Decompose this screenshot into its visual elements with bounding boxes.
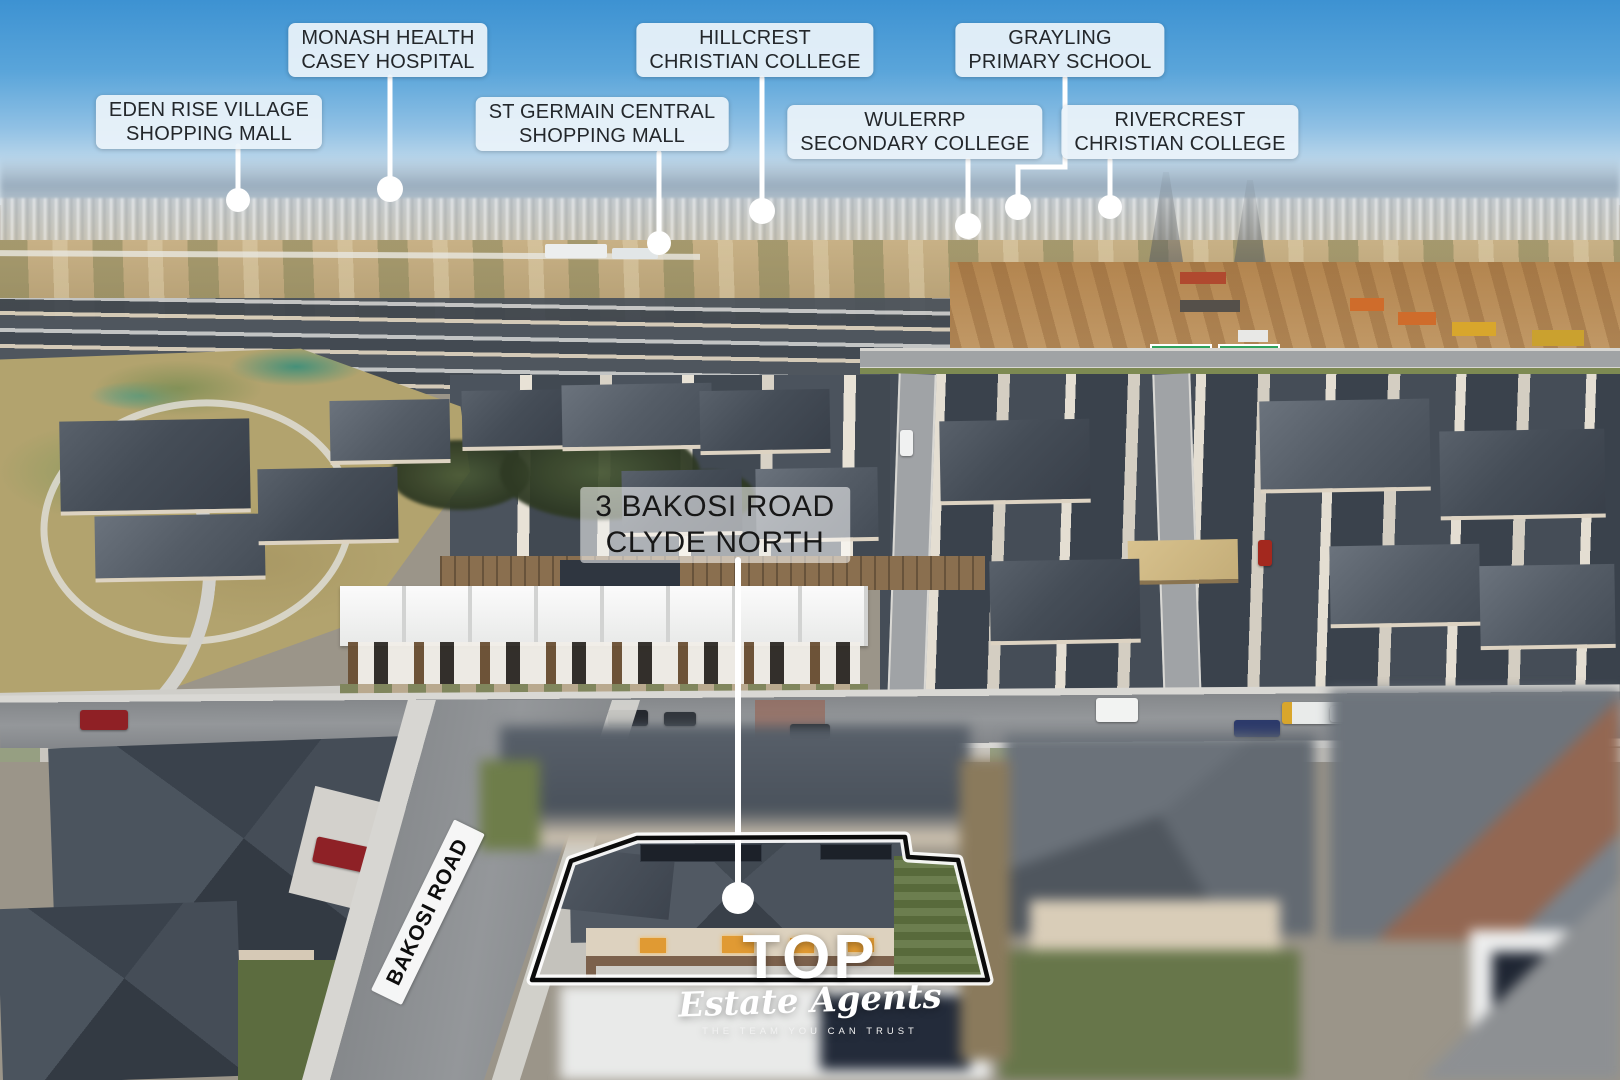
callout-line: CHRISTIAN COLLEGE — [1074, 132, 1285, 156]
location-dot — [647, 231, 671, 255]
property-address-line: 3 BAKOSI ROAD — [595, 489, 835, 525]
callout-line: PRIMARY SCHOOL — [968, 50, 1151, 74]
callout-rivercrest-christian-college: RIVERCREST CHRISTIAN COLLEGE — [1061, 105, 1298, 159]
callout-line: CHRISTIAN COLLEGE — [649, 50, 860, 74]
agency-logo-script: Estate Agents — [678, 979, 942, 1022]
callout-wulerrp-secondary-college: WULERRP SECONDARY COLLEGE — [787, 105, 1042, 159]
callout-line: HILLCREST — [649, 26, 860, 50]
callout-line: GRAYLING — [968, 26, 1151, 50]
agency-watermark: TOP Estate Agents THE TEAM YOU CAN TRUST — [678, 930, 941, 1037]
callout-line: SHOPPING MALL — [109, 122, 309, 146]
callout-eden-rise-village-shopping-mall: EDEN RISE VILLAGE SHOPPING MALL — [96, 95, 322, 149]
callout-grayling-primary-school: GRAYLING PRIMARY SCHOOL — [955, 23, 1164, 77]
callout-line: CASEY HOSPITAL — [301, 50, 474, 74]
callout-line: ST GERMAIN CENTRAL — [489, 100, 716, 124]
location-dot — [1098, 195, 1122, 219]
location-dot — [1005, 194, 1031, 220]
callout-line: MONASH HEALTH — [301, 26, 474, 50]
location-dot — [955, 213, 981, 239]
callout-monash-health-casey-hospital: MONASH HEALTH CASEY HOSPITAL — [288, 23, 487, 77]
location-dot — [749, 198, 775, 224]
callout-hillcrest-christian-college: HILLCREST CHRISTIAN COLLEGE — [636, 23, 873, 77]
agency-logo-tagline: THE TEAM YOU CAN TRUST — [678, 1026, 941, 1037]
callout-line: RIVERCREST — [1074, 108, 1285, 132]
callout-line: SECONDARY COLLEGE — [800, 132, 1029, 156]
property-marker-dot — [722, 882, 754, 914]
callout-line: WULERRP — [800, 108, 1029, 132]
property-address-label: 3 BAKOSI ROAD CLYDE NORTH — [580, 487, 850, 563]
callout-line: SHOPPING MALL — [489, 124, 716, 148]
location-dot — [377, 176, 403, 202]
aerial-photo: MONASH HEALTH CASEY HOSPITAL EDEN RISE V… — [0, 0, 1620, 1080]
leader-lines — [238, 77, 1110, 882]
callout-line: EDEN RISE VILLAGE — [109, 98, 309, 122]
location-dot — [226, 188, 250, 212]
property-address-line: CLYDE NORTH — [595, 525, 835, 561]
callout-st-germain-central-shopping-mall: ST GERMAIN CENTRAL SHOPPING MALL — [476, 97, 729, 151]
